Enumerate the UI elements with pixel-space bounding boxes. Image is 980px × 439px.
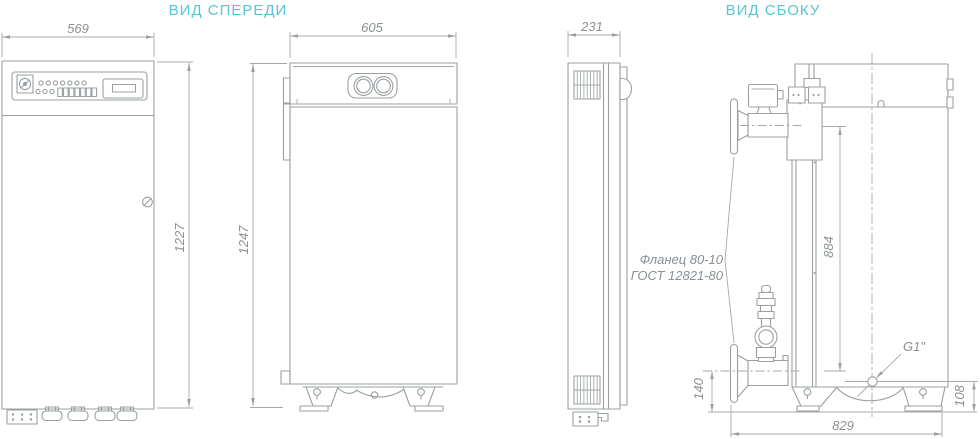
cabinet-side-body (568, 63, 620, 409)
dimension-boiler-width: 605 (290, 20, 456, 58)
side-view-boiler: 884 140 108 829 Фланец 80-10 ГОСТ 12821-… (631, 53, 978, 437)
flange-annotation: Фланец 80-10 ГОСТ 12821-80 (631, 157, 734, 343)
dimension-boiler-depth: 829 (731, 405, 942, 437)
boiler-legs-side (792, 387, 945, 411)
door-hinges (281, 78, 290, 384)
svg-text:140: 140 (691, 377, 706, 399)
rear-bracket-lower (947, 97, 953, 108)
ventilation-grille-bottom (574, 376, 600, 404)
boiler-legs-front (300, 387, 443, 411)
svg-text:231: 231 (580, 19, 603, 34)
dimension-pipe-centers: 884 (821, 127, 846, 372)
svg-text:Фланец 80-10: Фланец 80-10 (640, 252, 724, 267)
dimension-cabinet-depth: 231 (568, 19, 620, 57)
technical-drawing-canvas: ВИД СПЕРЕДИ ВИД СБОКУ (0, 0, 980, 439)
keyhole (143, 197, 153, 207)
dimension-boiler-height: 1247 (236, 64, 287, 408)
rear-bracket-upper (947, 79, 953, 90)
dimension-drain-height: 108 (952, 382, 976, 413)
flange-top (731, 99, 738, 154)
svg-text:605: 605 (361, 20, 383, 35)
hinge-mark (878, 101, 884, 108)
safety-valve (755, 286, 777, 362)
title-side-view: ВИД СБОКУ (726, 2, 821, 19)
svg-text:ГОСТ 12821-80: ГОСТ 12821-80 (631, 268, 724, 283)
front-view-control-cabinet: 569 1227 (2, 21, 193, 424)
technical-drawing-page: ВИД СПЕРЕДИ ВИД СБОКУ (0, 0, 980, 439)
dimension-cabinet-height: 1227 (157, 62, 193, 408)
boiler-body (290, 107, 457, 384)
display-screen (103, 79, 143, 98)
led-indicators (36, 81, 86, 94)
flange-bottom (731, 345, 738, 403)
ventilation-grille-top (574, 71, 600, 99)
cabinet-body (2, 61, 154, 409)
dimension-cabinet-width: 569 (2, 21, 154, 57)
lock-knob-side (620, 79, 632, 100)
svg-text:1247: 1247 (236, 225, 251, 255)
svg-text:108: 108 (952, 384, 967, 406)
control-panel (12, 72, 147, 100)
terminal-connector-side (573, 412, 608, 426)
svg-text:G1": G1" (903, 339, 926, 354)
flow-sensor (749, 85, 778, 108)
riser-pipes (792, 160, 816, 387)
terminal-block (7, 410, 37, 424)
svg-text:1227: 1227 (172, 223, 187, 253)
pipe-junction-block (787, 100, 822, 160)
front-view-boiler: 605 1247 (236, 20, 457, 411)
side-view-control-cabinet: 231 (568, 19, 632, 426)
drain-port-circle (868, 377, 877, 386)
svg-text:884: 884 (821, 236, 836, 258)
dimension-inlet-axis-height: 140 (691, 371, 714, 412)
panel-buttons (58, 88, 97, 97)
svg-text:569: 569 (67, 21, 89, 36)
svg-text:829: 829 (832, 418, 854, 433)
inlet-pipe-assembly (703, 286, 802, 403)
title-front-view: ВИД СПЕРЕДИ (169, 2, 288, 19)
wall-mount-plate (620, 67, 627, 405)
